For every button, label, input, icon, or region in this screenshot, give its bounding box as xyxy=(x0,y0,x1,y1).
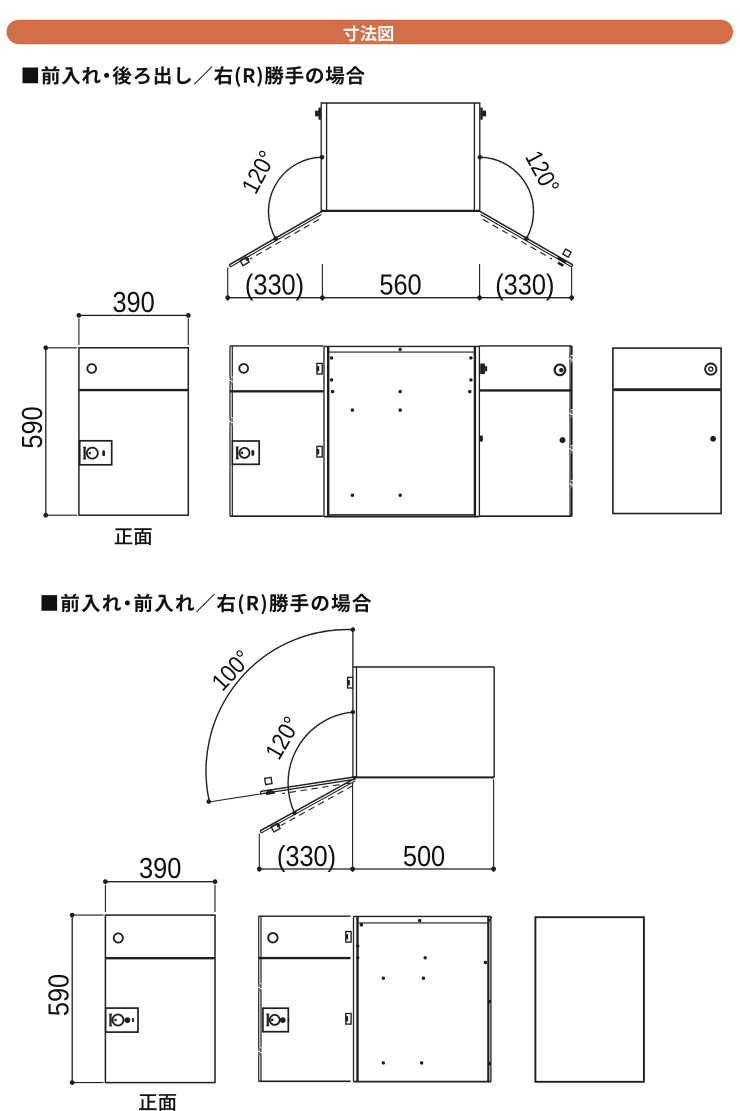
svg-text:120°: 120° xyxy=(236,146,281,198)
svg-text:(330): (330) xyxy=(495,268,554,301)
svg-text:120°: 120° xyxy=(520,146,565,198)
svg-text:500: 500 xyxy=(403,839,445,872)
svg-text:(330): (330) xyxy=(245,268,304,301)
svg-text:390: 390 xyxy=(139,851,181,884)
svg-text:100°: 100° xyxy=(206,645,256,696)
svg-text:390: 390 xyxy=(112,285,154,318)
svg-text:590: 590 xyxy=(42,974,75,1016)
svg-text:120°: 120° xyxy=(260,712,306,764)
svg-text:590: 590 xyxy=(15,406,48,448)
svg-text:(330): (330) xyxy=(277,839,336,872)
svg-text:560: 560 xyxy=(379,268,421,301)
